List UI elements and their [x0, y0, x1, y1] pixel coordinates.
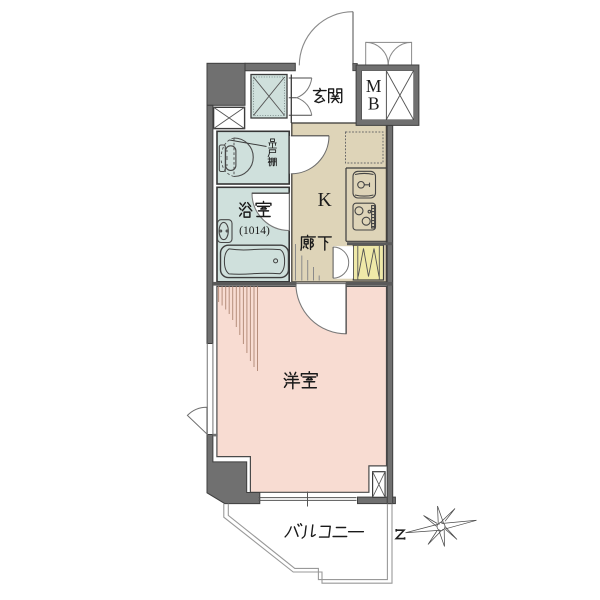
svg-text:(1014): (1014) — [239, 225, 270, 237]
svg-text:B: B — [368, 94, 380, 114]
svg-text:K: K — [318, 190, 332, 211]
